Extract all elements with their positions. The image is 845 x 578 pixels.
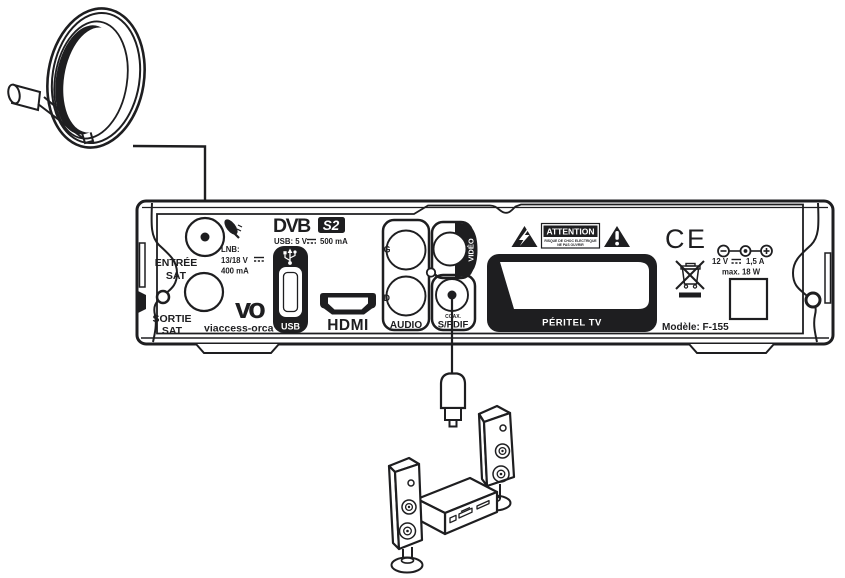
attention-sub2: NE PAS OUVRIR <box>557 243 584 247</box>
audio-rca-left <box>387 231 426 270</box>
audio-left-label: G <box>384 245 391 255</box>
right-mount-slot <box>825 253 831 303</box>
rca-plug-body <box>441 374 465 409</box>
exclamation-dot <box>615 242 619 246</box>
hdmi-label: HDMI <box>327 317 369 334</box>
audio-rca-right <box>387 277 426 316</box>
video-rca <box>434 233 467 266</box>
connection-diagram: ENTRÉE SAT SORTIE SAT LNB: 13/18 V 400 m… <box>0 0 845 578</box>
sat-out-label: SORTIE <box>152 313 191 325</box>
ce-mark: CE <box>665 224 708 254</box>
lnb-current: 400 mA <box>221 267 249 276</box>
lnb-voltage: 13/18 V <box>221 256 249 265</box>
audio-right-label: D <box>384 293 391 303</box>
left-screw-hole <box>157 291 169 303</box>
peritel-label: PÉRITEL TV <box>542 318 602 329</box>
hdmi-socket-inner <box>328 298 368 310</box>
rca-plug-icon <box>441 374 465 427</box>
dc-power-jack <box>730 279 767 319</box>
right-screw-hole <box>806 293 820 307</box>
usb-port: USB <box>273 246 308 333</box>
panel-screw <box>427 268 435 276</box>
s2-badge-text: S2 <box>323 218 340 233</box>
sat-cable-tip <box>201 233 210 242</box>
attention-title: ATTENTION <box>546 227 594 237</box>
scart-opening <box>500 262 649 309</box>
sat-out-label2: SAT <box>162 325 183 337</box>
exclamation-bar <box>615 231 618 240</box>
sat-in-label2: SAT <box>166 270 187 282</box>
left-mount-slot <box>140 243 146 287</box>
left-speaker-icon <box>389 458 423 573</box>
speaker-system <box>389 406 514 573</box>
power-voltage: 12 V <box>712 257 729 266</box>
right-foot <box>689 344 774 353</box>
usb-power-text: USB: 5 V <box>274 237 308 246</box>
sat-out-connector <box>185 273 223 311</box>
amplifier-icon <box>417 478 497 534</box>
usb-socket <box>279 267 302 317</box>
rca-plug-tip <box>450 420 457 427</box>
diagram-canvas: ENTRÉE SAT SORTIE SAT LNB: 13/18 V 400 m… <box>0 0 845 578</box>
power-current: 1,5 A <box>746 257 765 266</box>
usb-current-text: 500 mA <box>320 237 348 246</box>
attention-box: ATTENTION RISQUE DE CHOC ELECTRIQUE NE P… <box>542 224 600 249</box>
satellite-dish-icon <box>7 1 155 154</box>
audio-label: AUDIO <box>390 320 422 331</box>
video-label: VIDÉO <box>467 238 476 262</box>
scart-port: PÉRITEL TV <box>487 254 657 332</box>
right-speaker-icon <box>479 406 514 486</box>
sat-in-label: ENTRÉE <box>155 256 198 269</box>
vo-logo: vo <box>235 293 265 325</box>
viaccess-orca-text: viaccess-orca <box>204 323 274 335</box>
model-label: Modèle: F-155 <box>662 322 729 333</box>
left-foot <box>196 344 279 353</box>
dvb-logo-text: DVB <box>273 215 311 237</box>
lnb-title: LNB: <box>221 245 240 254</box>
left-pole-cap <box>402 558 414 563</box>
power-max: max. 18 W <box>722 268 761 277</box>
usb-label: USB <box>281 322 301 332</box>
rca-plug-collar <box>445 408 461 420</box>
